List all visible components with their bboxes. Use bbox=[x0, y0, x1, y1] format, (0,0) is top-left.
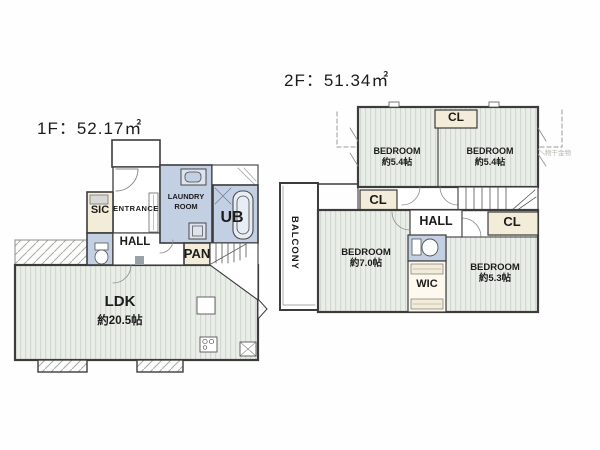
floor-title-1f: 1F：52.17㎡ bbox=[37, 114, 142, 139]
sic-cabinet bbox=[90, 195, 108, 204]
porch-hatch-area bbox=[15, 240, 87, 265]
room-label-entrance: ENTRANCE bbox=[113, 204, 159, 213]
room-label-balcony: BALCONY bbox=[289, 216, 300, 270]
room-label-bedroom2: BEDROOM約5.4帖 bbox=[467, 146, 514, 168]
room-label-ub: UB bbox=[220, 209, 243, 227]
washing-machine-icon bbox=[181, 169, 206, 185]
window-mark bbox=[389, 102, 399, 107]
room-label-cl-left: CL bbox=[369, 192, 386, 207]
entrance-porch bbox=[112, 140, 160, 167]
floor-1f-plan bbox=[15, 140, 267, 372]
room-size-bedroom4: 約5.3帖 bbox=[479, 273, 511, 284]
kitchen-stove-icon bbox=[200, 337, 217, 352]
room-label-bedroom3: BEDROOM約7.0帖 bbox=[341, 247, 391, 269]
room-label-pan: PAN bbox=[184, 246, 210, 261]
room-label-bedroom4: BEDROOM約5.3帖 bbox=[470, 262, 520, 284]
dashed-eave-right bbox=[540, 110, 562, 147]
room-label-ldk: LDK約20.5帖 bbox=[97, 293, 142, 330]
toilet-icon-2f bbox=[412, 239, 438, 256]
room-label-bedroom1: BEDROOM約5.4帖 bbox=[374, 146, 421, 168]
room-label-cl-right: CL bbox=[503, 214, 520, 229]
room-size-bedroom2: 約5.4帖 bbox=[475, 157, 506, 167]
kitchen-fridge bbox=[197, 297, 215, 314]
toilet-icon-1f bbox=[95, 243, 108, 264]
room-size-bedroom1: 約5.4帖 bbox=[382, 157, 413, 167]
laundry-sink-icon bbox=[189, 223, 206, 239]
floor-title-2f: 2F：51.34㎡ bbox=[284, 66, 389, 91]
room-label-sic: SIC bbox=[91, 204, 109, 216]
room-label-hall-2f: HALL bbox=[419, 214, 452, 228]
room-size-ldk: 約20.5帖 bbox=[97, 315, 142, 327]
stairs-2f bbox=[458, 187, 538, 211]
kitchen-sink-icon bbox=[240, 342, 256, 356]
room-label-cl-top: CL bbox=[448, 110, 464, 124]
bay-window-right bbox=[137, 360, 183, 372]
room-label-laundry: LAUNDRYROOM bbox=[168, 192, 204, 212]
room-size-bedroom3: 約7.0帖 bbox=[350, 258, 382, 269]
bay-window-left bbox=[38, 360, 87, 372]
void-above-ub bbox=[212, 165, 258, 185]
room-label-wic: WIC bbox=[416, 278, 437, 290]
side-door-mark bbox=[258, 299, 267, 319]
room-label-hall-1f: HALL bbox=[120, 236, 151, 248]
window-mark bbox=[489, 102, 499, 107]
floor-plan-page: 1F：52.17㎡ 2F：51.34㎡ SIC ENTRANCE LAUNDRY… bbox=[0, 0, 600, 450]
wall-post bbox=[135, 256, 144, 265]
dashed-eave-left bbox=[337, 112, 358, 147]
annotation-laundry-hardware: 物干金物 bbox=[545, 147, 571, 157]
